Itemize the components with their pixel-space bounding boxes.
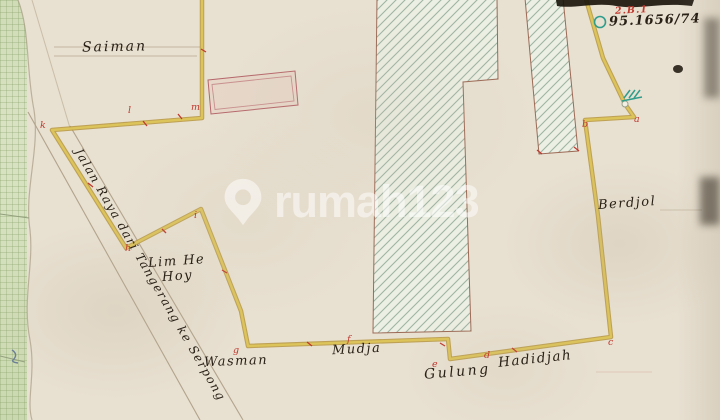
vertex-letter-a: a xyxy=(634,114,640,125)
vertex-letter-d: d xyxy=(484,350,490,361)
vertex-letter-c: c xyxy=(608,337,613,348)
page-edge-shadow xyxy=(704,18,720,98)
vertex-letter-k: k xyxy=(40,120,46,131)
vertex-letter-f: f xyxy=(347,334,351,345)
hatched-parcel-central xyxy=(373,0,498,333)
ink-blotch xyxy=(673,65,683,73)
binding-fold-line xyxy=(0,214,29,218)
vertex-letter-h: h xyxy=(125,243,131,254)
vertex-letter-m: m xyxy=(191,102,200,113)
vertex-letter-l: l xyxy=(128,105,131,116)
registry-file-number: 95.1656/74 xyxy=(609,11,701,29)
blue-ink-mark xyxy=(12,350,18,363)
torn-paper-edge xyxy=(18,0,48,420)
vertex-letter-b: b xyxy=(582,119,588,130)
parcel-label-mudja: Mudja xyxy=(332,341,382,359)
hatched-parcel-right xyxy=(525,0,578,154)
vertex-letter-e: e xyxy=(432,359,438,370)
pink-parcel-outline-outer xyxy=(208,71,298,114)
parcel-label-lim-he-hoy-line2: Hoy xyxy=(162,268,194,285)
teal-circle-mark xyxy=(595,17,606,28)
parcel-label-saiman: Saiman xyxy=(82,38,147,55)
vertex-letter-g: g xyxy=(233,345,239,356)
vertex-letter-i: i xyxy=(194,210,197,221)
scanned-cadastral-map-page: Saiman Lim He Hoy Wasman Mudja Gulung Ha… xyxy=(0,0,720,420)
page-edge-shadow xyxy=(700,177,720,225)
boundary-point-marker xyxy=(622,101,628,107)
